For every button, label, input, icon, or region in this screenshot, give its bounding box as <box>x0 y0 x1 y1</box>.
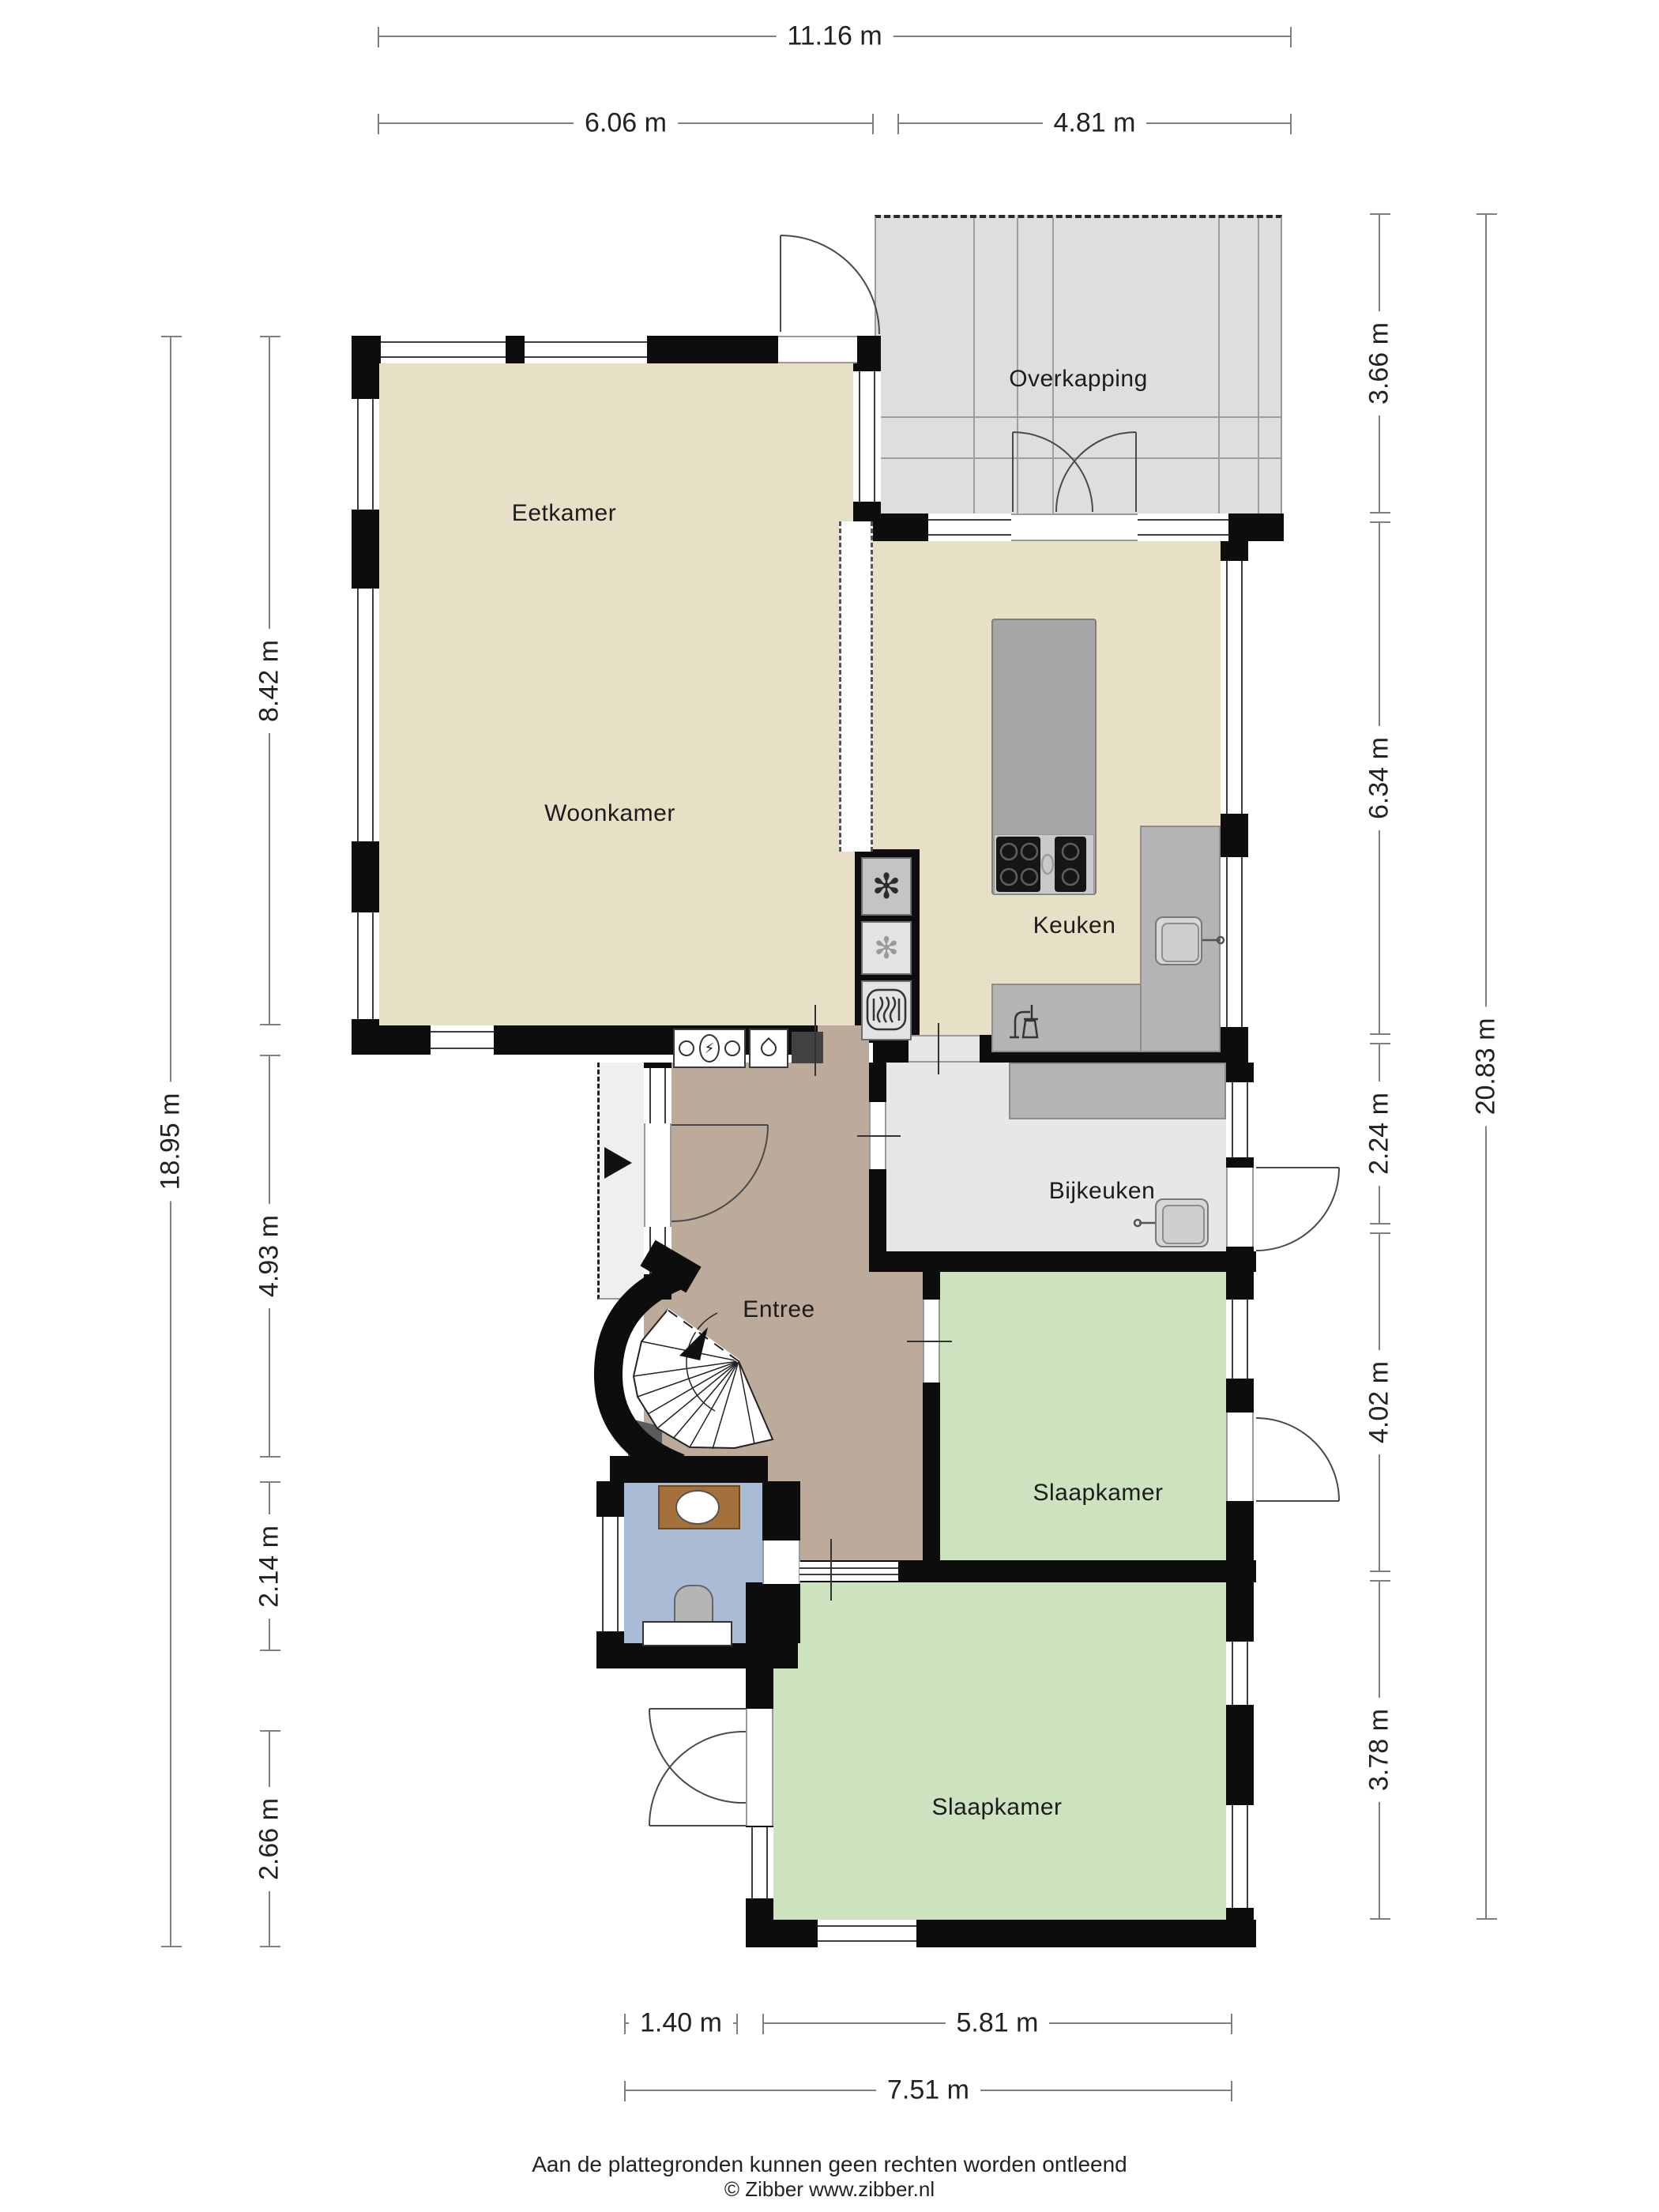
french-door-arcs <box>649 1709 746 1826</box>
dim-right-slaapkamer2: 3.78 m <box>1379 1580 1380 1920</box>
room-label-slaapkamer-2: Slaapkamer <box>931 1794 1062 1821</box>
entrance-arrow-icon <box>604 1147 632 1179</box>
boiling-water-tap-icon <box>1010 1005 1038 1037</box>
front-door-arc <box>671 1125 768 1221</box>
dim-top-right: 4.81 m <box>897 122 1292 124</box>
dim-left-lower: 2.14 m <box>269 1481 270 1651</box>
dim-bottom-left: 1.40 m <box>624 2022 738 2024</box>
room-label-entree: Entree <box>743 1296 814 1323</box>
dim-top-total: 11.16 m <box>378 36 1292 37</box>
door-swing-arcs <box>649 235 1339 1826</box>
dim-right-total: 20.83 m <box>1485 213 1487 1920</box>
kitchen-sink-tap-icon <box>1202 937 1224 943</box>
dim-left-bottom: 2.66 m <box>269 1730 270 1947</box>
dim-right-keuken: 6.34 m <box>1379 521 1380 1035</box>
dim-top-left: 6.06 m <box>378 122 874 124</box>
porch-markings <box>604 1147 632 1179</box>
dim-left-mid: 4.93 m <box>269 1055 270 1458</box>
footer: Aan de plattegronden kunnen geen rechten… <box>0 2152 1659 2202</box>
dim-right-bijkeuken: 2.24 m <box>1379 1043 1380 1224</box>
dim-left-upper: 8.42 m <box>269 336 270 1025</box>
slaapkamer1-door-arc <box>1256 1418 1339 1501</box>
dim-left-total: 18.95 m <box>170 336 171 1947</box>
dim-right-slaapkamer1: 4.02 m <box>1379 1232 1380 1572</box>
dim-right-overkapping: 3.66 m <box>1379 213 1380 513</box>
room-label-eetkamer: Eetkamer <box>512 500 616 527</box>
room-label-slaapkamer-1: Slaapkamer <box>1033 1480 1163 1507</box>
overkapping-double-door-arcs <box>1013 432 1136 512</box>
cooktop-burner-rings <box>1001 844 1078 885</box>
footer-credit: © Zibber www.zibber.nl <box>0 2177 1659 2202</box>
dim-bottom-right: 5.81 m <box>762 2022 1232 2024</box>
oven-icon <box>867 990 905 1029</box>
floorplan-canvas: ✻ ✻ ⚡ <box>0 0 1659 2212</box>
room-label-keuken: Keuken <box>1033 912 1116 939</box>
room-label-woonkamer: Woonkamer <box>544 800 675 827</box>
room-label-overkapping: Overkapping <box>1009 366 1148 393</box>
footer-disclaimer: Aan de plattegronden kunnen geen rechten… <box>0 2152 1659 2177</box>
door-markers <box>815 1005 952 1601</box>
plan-annotations <box>0 0 1659 2212</box>
bijkeuken-sink-tap-icon <box>1134 1220 1155 1226</box>
room-label-bijkeuken: Bijkeuken <box>1049 1178 1156 1205</box>
garden-door-arc <box>781 235 879 334</box>
floorplan: ✻ ✻ ⚡ <box>0 0 1659 2212</box>
dim-bottom-total: 7.51 m <box>624 2090 1232 2091</box>
bijkeuken-door-arc <box>1256 1168 1339 1251</box>
